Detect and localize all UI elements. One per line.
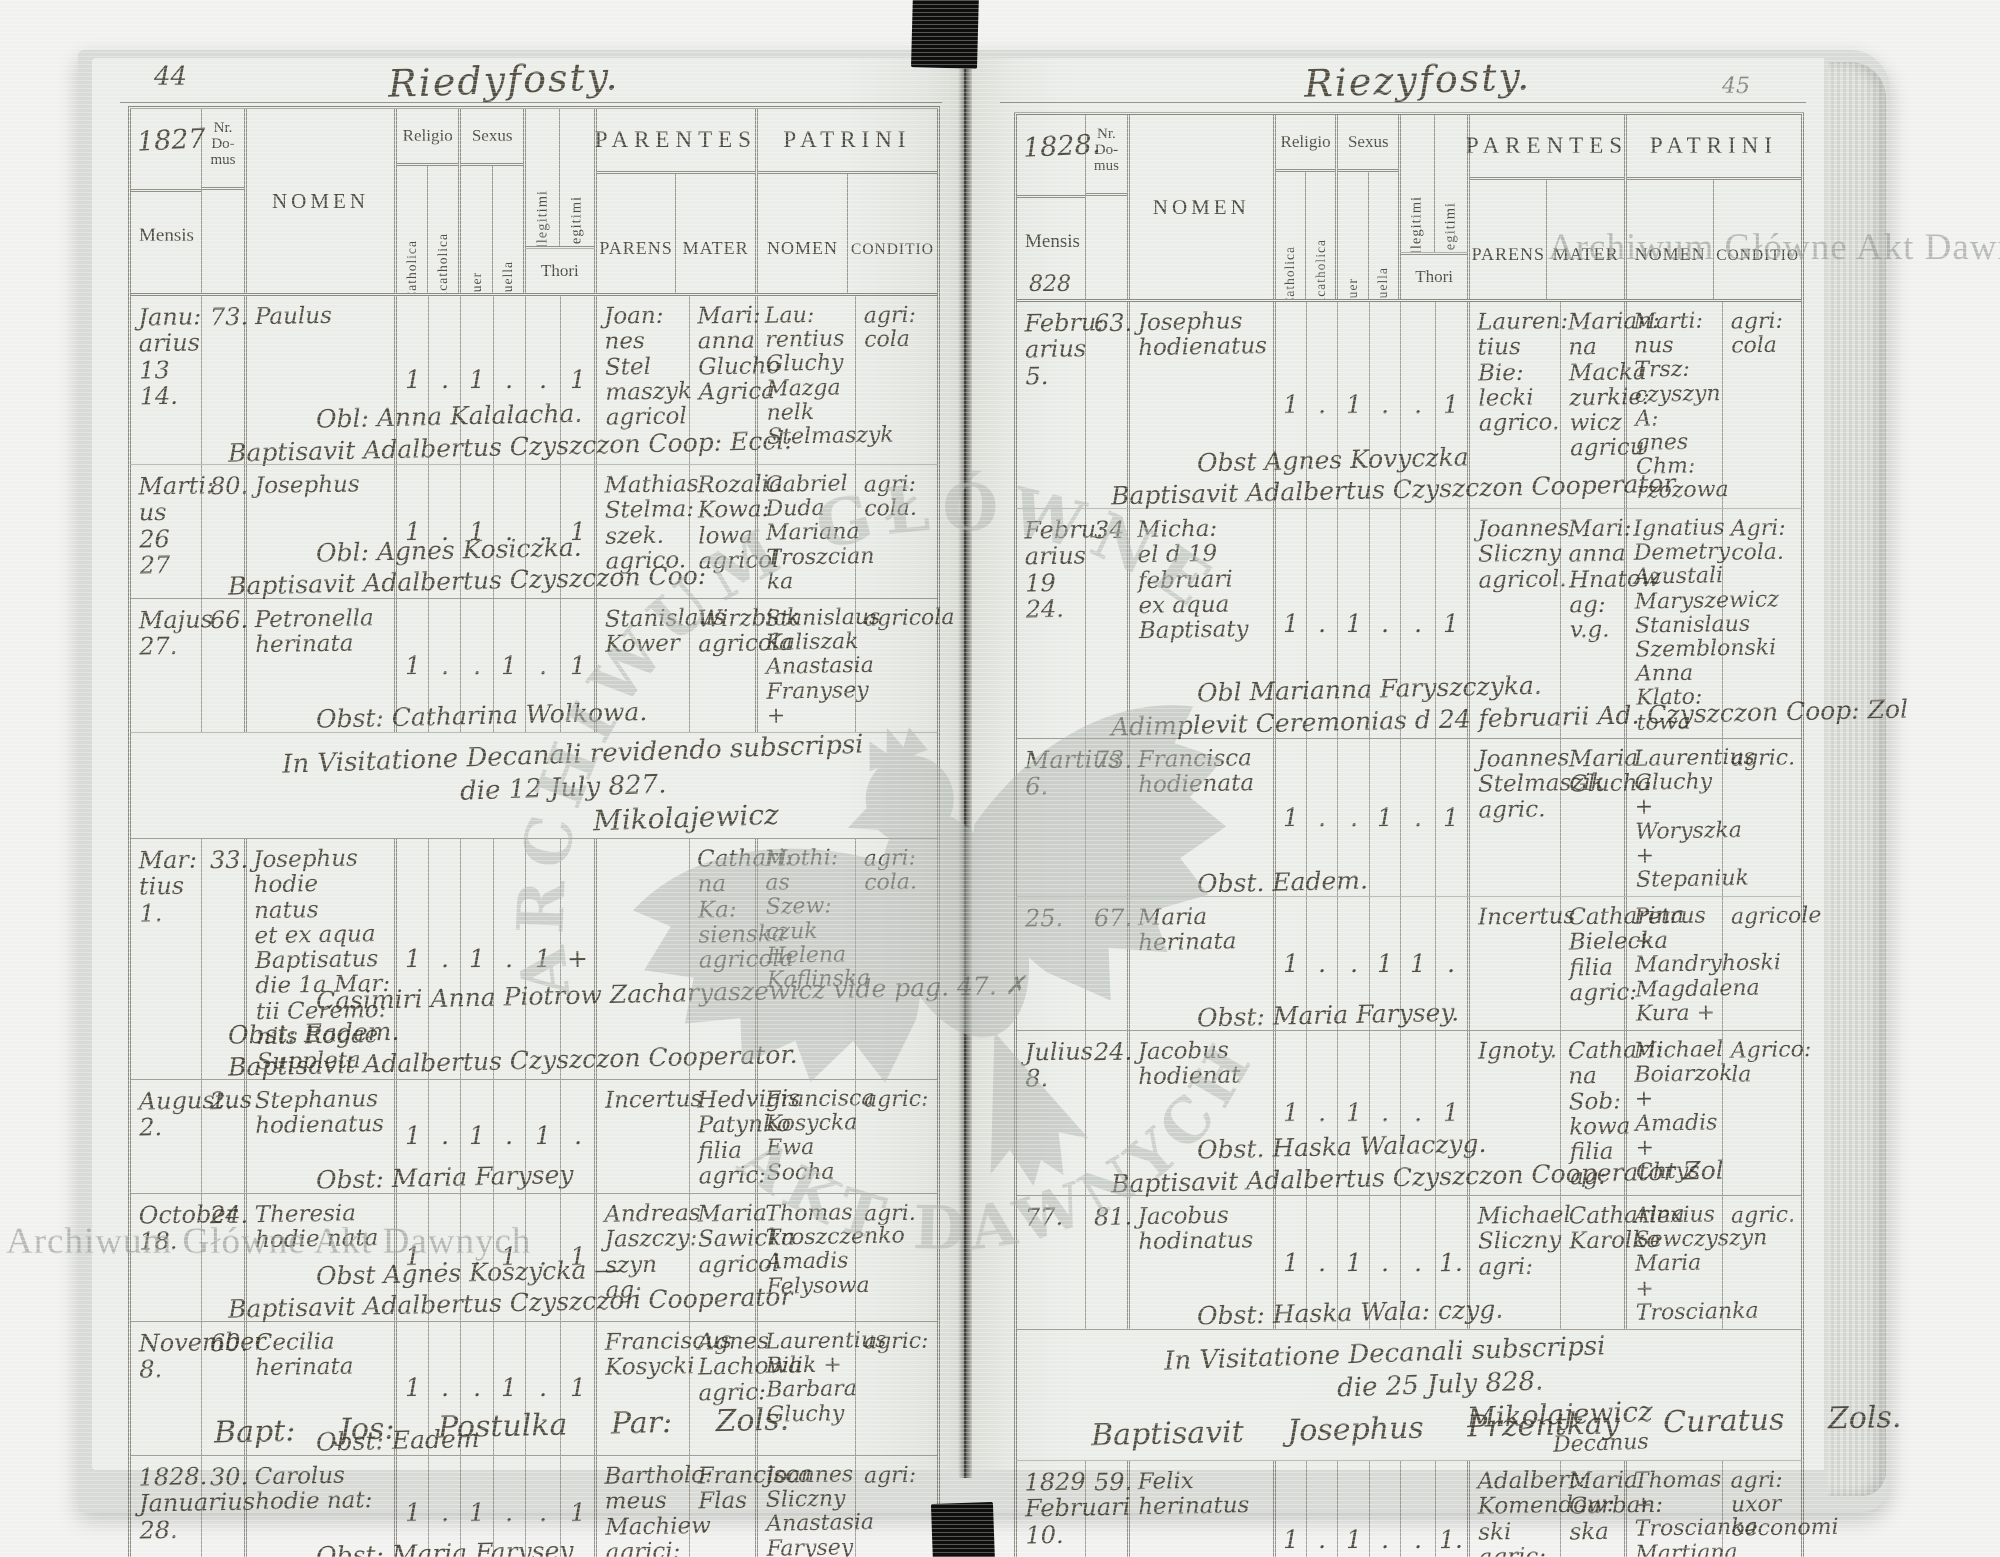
cell-parens-text xyxy=(605,846,685,847)
illegitimi-label: Illegitimi xyxy=(1409,196,1426,252)
cell-mater-text: Marian: na Macka zurkie: wicz agricu xyxy=(1568,310,1621,463)
cell-mark-illegitimi-text: . xyxy=(1414,1526,1422,1554)
cell-mark-catholica: 1 xyxy=(1276,1031,1307,1195)
cell-mark-illegitimi-text: . xyxy=(539,1243,547,1271)
cell-mark-puella-text: 1 xyxy=(1377,804,1393,832)
title-rule xyxy=(120,102,942,103)
cell-mark-acatholica-text: . xyxy=(441,652,449,680)
year-extra-handwritten: 828 xyxy=(1029,272,1071,297)
cell-mark-puer: 1 xyxy=(1338,1031,1369,1195)
page-number: 45 xyxy=(1722,74,1750,99)
cell-nomen: Jacobus hodienat xyxy=(1130,1031,1276,1195)
cell-nomen-text: Jacobus hodienat xyxy=(1137,1038,1269,1091)
cell-mark-puella-text: . xyxy=(1381,1249,1389,1277)
cell-conditio-text: agri: cola xyxy=(864,303,933,353)
cell-mark-catholica: 1 xyxy=(1276,739,1307,896)
register-table: 1827 Mensis Nr. Do- mus NOMEN Religio Ca… xyxy=(128,106,940,1557)
header-parentes-group: PARENTES PARENS MATER xyxy=(1470,115,1627,299)
cell-mark-legitimi-text: 1 xyxy=(569,652,585,680)
cell-mark-catholica-text: 1 xyxy=(404,1498,420,1526)
cell-mark-puella-text: . xyxy=(1381,391,1389,419)
cell-patrini-nomen-text: Joannes Sliczny Anastasia Farysey xyxy=(765,1463,852,1557)
cell-mark-illegitimi: . xyxy=(526,296,561,464)
subcol-mater: MATER xyxy=(676,174,755,293)
cell-mark-legitimi: 1 xyxy=(1436,739,1470,896)
cell-nomen-text: Felix herinatus xyxy=(1137,1468,1269,1521)
cell-nomen-text: Josephus hodienatus xyxy=(1137,309,1269,362)
register-table: 1828. Mensis 828 Nr. Do- mus NOMEN Relig… xyxy=(1014,112,1804,1557)
header-sexus-group: Sexus Puer Puella xyxy=(1338,115,1401,299)
cell-mensis-text: Febru: arius 19 24. xyxy=(1024,516,1082,623)
cell-parens-text: Lauren: tius Bie: lecki agrico. xyxy=(1477,309,1557,437)
register-row: Marti: us 26 2780.Josephus1.1..1Mathias … xyxy=(131,465,937,599)
cell-mark-legitimi: . xyxy=(561,1080,596,1193)
cell-mark-puella: 1 xyxy=(1370,897,1401,1030)
cell-mark-catholica: 1 xyxy=(397,1080,429,1193)
religio-label: Religio xyxy=(1276,115,1336,172)
cell-conditio-text: agric: xyxy=(864,1087,933,1112)
house-number-label: Nr. Do- mus xyxy=(202,109,244,190)
cell-parens: Joannes Sliczny agricol. xyxy=(1470,509,1561,739)
register-row: 25.67.Maria herinata1..11.IncertusCathar… xyxy=(1017,897,1801,1031)
cell-mensis: 1828. Januarius 28. xyxy=(131,1456,202,1557)
cell-mark-illegitimi-text: . xyxy=(1414,1099,1422,1127)
cell-parens-text: Franciscus Kosycki xyxy=(604,1329,685,1381)
thori-label: Thori xyxy=(526,246,594,293)
cell-mark-puer: . xyxy=(461,599,493,732)
cell-mark-legitimi: + xyxy=(561,839,596,1079)
cell-conditio-text: agri. xyxy=(864,1201,933,1226)
cell-mensis-text: Martius 6. xyxy=(1025,747,1082,801)
cell-house-number-text: 34 xyxy=(1094,516,1123,543)
cell-mark-catholica-text: 1 xyxy=(1283,804,1299,832)
cell-nomen-text: Micha: el d 19 februari ex aqua Baptisat… xyxy=(1137,515,1270,644)
cell-patrini-nomen-text: Petrus + Mandryhoski Magdalena Kura + xyxy=(1634,905,1719,1027)
patrini-nomen-label: NOMEN xyxy=(758,238,847,259)
cell-mark-catholica: 1 xyxy=(397,1194,429,1321)
cell-parens-text: Ignoty. xyxy=(1478,1039,1556,1066)
cell-house-number: 81. xyxy=(1086,1196,1130,1329)
header-sexus-group: Sexus Puer Puella xyxy=(461,109,525,293)
cell-nomen-text: Paulus xyxy=(255,303,390,331)
cell-house-number: 73. xyxy=(202,296,247,464)
cell-mark-legitimi-text: 1 xyxy=(569,366,585,394)
cell-nomen: Petronella herinata xyxy=(247,599,397,732)
cell-mark-legitimi: 1 xyxy=(561,296,596,464)
cell-mark-catholica: 1 xyxy=(1276,897,1307,1030)
cell-mater: Rozalia Kowa: lowa agricol xyxy=(690,465,758,598)
cell-parens-text: Adalbert: Komendow: ski agric: xyxy=(1477,1468,1557,1557)
cell-mark-legitimi: 1 xyxy=(561,599,596,732)
cell-conditio-text: agri: cola xyxy=(1730,309,1797,359)
parentes-label: PARENTES xyxy=(597,109,755,174)
cell-mark-acatholica: . xyxy=(429,599,461,732)
sexus-label: Sexus xyxy=(461,109,522,166)
cell-mater-text: Hedvigis Patynko filia agric: xyxy=(697,1087,751,1189)
cell-house-number: 33. xyxy=(202,839,247,1079)
cell-conditio-text: agri: uxor oeconomi xyxy=(1730,1468,1798,1542)
cell-mensis: Mar: tius 1. xyxy=(131,839,202,1079)
cell-mensis-text: 1828. Januarius 28. xyxy=(138,1463,197,1543)
subcol-illegitimi: Illegitimi xyxy=(526,109,560,246)
cell-mark-legitimi: 1 xyxy=(1436,509,1470,739)
cell-nomen-text: Cecilia herinata xyxy=(255,1329,391,1382)
register-row: Janu: arius 13 14.73.Paulus1.1..1Joan: n… xyxy=(131,296,937,465)
cell-mark-acatholica: . xyxy=(429,296,461,464)
register-row: Julius 8.24.Jacobus hodienat1.1..1Ignoty… xyxy=(1017,1031,1801,1196)
cell-parens: Adalbert: Komendow: ski agric: xyxy=(1470,1461,1561,1557)
cell-patrini-nomen: Laurentius Gluchy + Woryszka + Stepaniuk xyxy=(1627,739,1723,896)
parens-label: PARENS xyxy=(597,238,676,259)
cell-mark-acatholica-text: . xyxy=(441,1374,449,1402)
cell-mark-legitimi: 1 xyxy=(1436,1031,1470,1195)
cell-parens: Joan: nes Stel maszyk agricol xyxy=(597,296,690,464)
cell-nomen-text: Francisca hodienata xyxy=(1137,746,1269,799)
cell-mensis-text: Marti: us 26 27 xyxy=(138,473,198,580)
table-body: Febru: arius 5.63.Josephus hodienatus1.1… xyxy=(1017,302,1801,1557)
cell-mensis: 77. xyxy=(1017,1196,1086,1329)
page-number: 44 xyxy=(154,62,187,92)
cell-conditio-text: agricole xyxy=(1730,905,1797,930)
cell-conditio-text: agric. xyxy=(1730,747,1797,772)
cell-conditio: agric: xyxy=(856,1322,937,1455)
cell-mark-legitimi: . xyxy=(1436,897,1470,1030)
cell-nomen: Carolus hodie nat: xyxy=(247,1456,397,1557)
cell-mark-puer-text: 1 xyxy=(1345,1249,1361,1277)
cell-mark-puella-text: . xyxy=(505,518,513,546)
cell-nomen: Felix herinatus xyxy=(1130,1461,1276,1557)
cell-house-number-text: 59. xyxy=(1094,1469,1123,1496)
cell-nomen-text: Petronella herinata xyxy=(255,606,391,659)
cell-mark-puer-text: 1 xyxy=(469,366,485,394)
cell-mark-puella: . xyxy=(494,465,526,598)
cell-mark-puer-text: . xyxy=(1349,804,1357,832)
binding-strap-top xyxy=(911,0,979,69)
cell-mark-illegitimi: . xyxy=(526,465,561,598)
cell-mark-legitimi-text: 1. xyxy=(1439,1526,1463,1554)
cell-nomen-text: Stephanus hodienatus xyxy=(255,1086,391,1139)
cell-mark-puer-text: 1 xyxy=(469,1498,485,1526)
register-row: Mar: tius 1.33.Josephus hodie natus et e… xyxy=(131,839,937,1080)
cell-mater: Mari: anna Glucho Agrica xyxy=(690,296,758,464)
cell-mark-puella: . xyxy=(494,1080,526,1193)
cell-patrini-nomen-text: Michael Boiarzok + Amadis + Chtys xyxy=(1634,1039,1719,1186)
cell-mater-text: Cathari: na Ka: sienska agricola xyxy=(697,846,752,973)
cell-parens-text: Stanislaus Kower xyxy=(604,606,685,658)
cell-mark-legitimi-text: 1 xyxy=(1443,804,1459,832)
cell-mark-legitimi-text: . xyxy=(573,1122,581,1150)
cell-mater-text: Agnes Lachowa agric: xyxy=(698,1329,752,1406)
cell-conditio-text: Agri: cola. xyxy=(1730,516,1797,566)
cell-parens: Stanislaus Kower xyxy=(597,599,690,732)
cell-mark-puella: 1 xyxy=(1370,739,1401,896)
cell-mark-legitimi-text: 1 xyxy=(569,1243,585,1271)
cell-mark-puer-text: 1 xyxy=(1345,609,1361,637)
cell-mark-acatholica-text: . xyxy=(1318,804,1326,832)
cell-nomen: Josephus hodienatus xyxy=(1130,302,1276,508)
sexus-label: Sexus xyxy=(1338,115,1398,172)
header-nomen: NOMEN xyxy=(1130,115,1276,299)
cell-parens-text: Michael Sliczny agri: xyxy=(1477,1203,1556,1280)
acatholica-label: Acatholica xyxy=(435,233,451,293)
subcol-mater: MATER xyxy=(1547,180,1623,299)
cell-mark-puella: . xyxy=(1370,1196,1401,1329)
cell-conditio-text: agri: cola. xyxy=(864,472,933,522)
cell-mark-acatholica-text: . xyxy=(441,1243,449,1271)
cell-mark-legitimi-text: 1 xyxy=(1443,1099,1459,1127)
religio-label: Religio xyxy=(397,109,458,166)
cell-mensis: Julius 8. xyxy=(1017,1031,1086,1195)
parens-label: PARENS xyxy=(1470,244,1546,265)
cell-mark-illegitimi: . xyxy=(1401,1461,1435,1557)
cell-mark-puer-text: 1 xyxy=(469,1122,485,1150)
cell-mark-illegitimi-text: . xyxy=(1414,391,1422,419)
cell-parens: Ignoty. xyxy=(1470,1031,1561,1195)
cell-parens-text: Bartholo: meus Machiew agrici: xyxy=(604,1463,686,1557)
cell-mark-illegitimi-text: . xyxy=(539,518,547,546)
cell-patrini-nomen: Gabriel Duda Mariana Troszcian ka xyxy=(758,465,856,598)
cell-patrini-nomen-text: Stanislaus Kaliszak Anastasia Franysey + xyxy=(765,606,852,728)
page-title-handwritten: Riezyfosty. xyxy=(1303,54,1531,106)
cell-mater-text: Francisca Flas xyxy=(698,1463,752,1515)
cell-mark-acatholica: . xyxy=(429,1456,461,1557)
cell-parens: Incertus xyxy=(597,1080,690,1193)
subcol-conditio: CONDITIO xyxy=(848,174,937,293)
cell-mark-legitimi: 1 xyxy=(561,1456,596,1557)
register-row: 1828. Januarius 28.30.Carolus hodie nat:… xyxy=(131,1456,937,1557)
cell-patrini-nomen: Lau: rentius Gluchy Mazga nelk Stelmaszy… xyxy=(758,296,856,464)
cell-mark-catholica-text: 1 xyxy=(404,366,420,394)
cell-mark-illegitimi-text: . xyxy=(539,652,547,680)
cell-mark-catholica-text: 1 xyxy=(1283,1099,1299,1127)
subcol-conditio: CONDITIO xyxy=(1714,180,1801,299)
thori-label: Thori xyxy=(1401,252,1467,299)
puer-label: Puer xyxy=(469,272,485,293)
cell-mark-legitimi-text: + xyxy=(567,945,588,973)
cell-mark-catholica: 1 xyxy=(1276,1196,1307,1329)
nomen-label: NOMEN xyxy=(272,189,369,214)
cell-mark-catholica: 1 xyxy=(397,1456,429,1557)
cell-mark-illegitimi-text: 1 xyxy=(1410,950,1426,978)
cell-conditio: agri: cola xyxy=(1723,302,1801,508)
cell-nomen: Theresia hodie nata xyxy=(247,1194,397,1321)
cell-mensis: Majus 27. xyxy=(131,599,202,732)
cell-mark-acatholica-text: . xyxy=(441,1499,449,1527)
cell-mark-puer-text: . xyxy=(1349,950,1357,978)
cell-mark-puer-text: . xyxy=(473,1374,481,1402)
subcol-acatholica: Acatholica xyxy=(1306,172,1335,299)
register-book: 44 Riedyfosty. 1827 Mensis Nr. Do- mus N… xyxy=(78,50,1890,1512)
cell-mensis: Marti: us 26 27 xyxy=(131,465,202,598)
page-right: 45 Riezyfosty. 1828. Mensis 828 Nr. Do- … xyxy=(972,58,1824,1470)
book-gutter xyxy=(958,50,972,1478)
cell-conditio-text: agricola xyxy=(864,606,933,631)
cell-parens: Mathias Stelma: szek. agrico. xyxy=(597,465,690,598)
cell-mater: Maria Glucha xyxy=(1561,739,1627,896)
cell-mark-catholica-text: 1 xyxy=(404,1243,420,1271)
cell-mensis: Augustus 2. xyxy=(131,1080,202,1193)
cell-mark-catholica-text: 1 xyxy=(404,1122,420,1150)
cell-mater: Maria Garban: ska xyxy=(1561,1461,1627,1557)
cell-mark-illegitimi: 1 xyxy=(526,839,561,1079)
cell-conditio: agri. xyxy=(856,1194,937,1321)
cell-mater: Hedvigis Patynko filia agric: xyxy=(690,1080,758,1193)
cell-mark-catholica: 1 xyxy=(397,465,429,598)
cell-mark-acatholica-text: . xyxy=(1318,950,1326,978)
catholica-label: Catholica xyxy=(404,240,420,293)
cell-conditio: agri: cola. xyxy=(856,839,937,1079)
cell-mark-puer-text: 1 xyxy=(1345,391,1361,419)
cell-patrini-nomen: Petrus + Mandryhoski Magdalena Kura + xyxy=(1627,897,1723,1030)
cell-mark-acatholica-text: . xyxy=(441,366,449,394)
cell-mark-catholica-text: 1 xyxy=(404,1374,420,1402)
cell-parens-text: Incertus xyxy=(605,1087,686,1114)
cell-mater-text: Mari: anna Hnatow ag: v.g. xyxy=(1568,516,1621,643)
cell-mark-illegitimi-text: . xyxy=(1414,804,1422,832)
subcol-acatholica: Acatholica xyxy=(428,166,458,293)
cell-mark-puella-text: . xyxy=(1381,1526,1389,1554)
cell-mensis-text: 25. xyxy=(1025,905,1081,932)
cell-mater-text: Maria Garban: ska xyxy=(1568,1469,1620,1546)
cell-mark-legitimi: 1 xyxy=(561,465,596,598)
cell-mensis: Febru: arius 5. xyxy=(1017,302,1086,508)
cell-mater: Francisca Flas xyxy=(690,1456,758,1557)
cell-parens xyxy=(597,839,690,1079)
cell-mark-illegitimi-text: . xyxy=(539,366,547,394)
cell-mark-acatholica-text: . xyxy=(441,518,449,546)
conditio-label: CONDITIO xyxy=(848,241,937,259)
cell-mark-puella: . xyxy=(1370,302,1401,508)
cell-mark-puer: . xyxy=(1338,739,1369,896)
cell-mark-acatholica-text: . xyxy=(1318,1249,1326,1277)
register-row: October 18.24.Theresia hodie nata1..1.1A… xyxy=(131,1194,937,1322)
cell-mark-legitimi: 1. xyxy=(1436,1461,1470,1557)
cell-mark-puer: 1 xyxy=(461,1080,493,1193)
cell-mark-puer-text: 1 xyxy=(469,945,485,973)
cell-patrini-nomen: Ignatius Demetry Azustali Maryszewicz St… xyxy=(1627,509,1723,739)
cell-mark-acatholica: . xyxy=(1307,1031,1338,1195)
cell-mensis-text: Julius 8. xyxy=(1025,1039,1082,1093)
cell-mater-text: Catharina Bielecka filia agric: xyxy=(1568,905,1621,1007)
register-row: Augustus 2.2.Stephanus hodienatus1.1.1.I… xyxy=(131,1080,937,1194)
cell-mark-puella: . xyxy=(494,839,526,1079)
cell-house-number-text: 60. xyxy=(210,1329,241,1356)
cell-mark-puella-text: 1 xyxy=(501,652,517,680)
cell-mensis: November 8. xyxy=(131,1322,202,1455)
subcol-patrini-nomen: NOMEN xyxy=(1627,180,1715,299)
cell-house-number-text: 30. xyxy=(210,1463,241,1490)
register-row: 77.81.Jacobus hodinatus1.1..1.Michael Sl… xyxy=(1017,1196,1801,1330)
cell-mensis-text: Majus 27. xyxy=(139,606,198,660)
cell-mark-legitimi-text: 1 xyxy=(1443,609,1459,637)
cell-mark-puer-text: 1 xyxy=(469,518,485,546)
cell-house-number-text: 2. xyxy=(210,1087,241,1114)
cell-house-number-text: 73. xyxy=(1094,747,1123,774)
cell-patrini-nomen: Thomas Troszczenko Amadis Felysowa xyxy=(758,1194,856,1321)
cell-mensis-text: 77. xyxy=(1025,1204,1081,1231)
table-header: 1828. Mensis 828 Nr. Do- mus NOMEN Relig… xyxy=(1017,115,1801,302)
cell-parens: Incertus xyxy=(1470,897,1561,1030)
cell-conditio-text: agri: cola. xyxy=(864,846,933,896)
cell-mark-puella: . xyxy=(494,1456,526,1557)
cell-nomen: Paulus xyxy=(247,296,397,464)
scan-background: 44 Riedyfosty. 1827 Mensis Nr. Do- mus N… xyxy=(0,0,2000,1557)
cell-mark-legitimi: 1 xyxy=(1436,302,1470,508)
cell-mensis-text: Janu: arius 13 14. xyxy=(138,304,198,411)
cell-nomen-text: Josephus xyxy=(255,472,390,500)
cell-mater-text: Wirzbick agricola xyxy=(698,606,752,658)
cell-parens: Lauren: tius Bie: lecki agrico. xyxy=(1470,302,1561,508)
header-religio-group: Religio Catholica Acatholica xyxy=(1276,115,1339,299)
cell-mensis: October 18. xyxy=(131,1194,202,1321)
cell-conditio-text: agric. xyxy=(1730,1203,1797,1228)
mensis-label: Mensis xyxy=(139,225,194,247)
cell-mark-catholica: 1 xyxy=(1276,302,1307,508)
cell-mark-illegitimi: . xyxy=(1401,1031,1435,1195)
patrini-nomen-label: NOMEN xyxy=(1627,244,1714,265)
cell-mark-puella-text: . xyxy=(505,945,513,973)
cell-mark-illegitimi: . xyxy=(1401,1196,1435,1329)
cell-patrini-nomen: Francisca Kosycka Ewa Socha xyxy=(758,1080,856,1193)
patrini-label: PATRINI xyxy=(1627,115,1801,180)
cell-mater-text: Maria Glucha xyxy=(1569,747,1621,798)
cell-mark-illegitimi-text: . xyxy=(1414,610,1422,638)
cell-house-number: 67. xyxy=(1086,897,1130,1030)
cell-parens-text: Andreas Jaszczy: szyn ag: xyxy=(604,1201,686,1304)
subcol-puer: Puer xyxy=(461,166,492,293)
cell-mark-puer: 1 xyxy=(461,839,493,1079)
cell-mark-acatholica: . xyxy=(1307,1196,1338,1329)
register-row: Febru: arius 5.63.Josephus hodienatus1.1… xyxy=(1017,302,1801,509)
cell-mark-puella-text: 1 xyxy=(501,1374,517,1402)
cell-mark-acatholica-text: . xyxy=(1318,1526,1326,1554)
cell-mater: Cathari: na Sob: kowa filia ag: xyxy=(1561,1031,1627,1195)
cell-conditio-text: Agrico: la xyxy=(1730,1039,1797,1089)
cell-mark-legitimi-text: 1 xyxy=(569,1498,585,1526)
header-mensis: 1827 Mensis xyxy=(131,109,202,293)
header-religio-group: Religio Catholica Acatholica xyxy=(397,109,461,293)
cell-mensis-text: November 8. xyxy=(139,1329,198,1383)
catholica-label: Catholica xyxy=(1282,246,1298,299)
subcol-legitimi: Legitimi xyxy=(1435,115,1467,252)
binding-strap-bottom xyxy=(931,1502,995,1557)
header-nomen: NOMEN xyxy=(247,109,397,293)
cell-mark-catholica-text: 1 xyxy=(1283,1249,1299,1277)
cell-patrini-nomen-text: Lau: rentius Gluchy Mazga nelk Stelmaszy… xyxy=(765,303,853,450)
cell-mater: Maria Sawicka agricol xyxy=(690,1194,758,1321)
cell-mark-acatholica-text: . xyxy=(1318,610,1326,638)
cell-mark-illegitimi: . xyxy=(1401,509,1435,739)
cell-mark-puella-text: . xyxy=(505,1122,513,1150)
cell-house-number-text: 80. xyxy=(210,473,241,500)
cell-mater-text: Cathari: na Sob: kowa filia ag: xyxy=(1568,1039,1621,1192)
cell-nomen-text: Carolus hodie nat: xyxy=(255,1463,391,1516)
subcol-patrini-nomen: NOMEN xyxy=(758,174,848,293)
cell-mark-puer-text: 1 xyxy=(1345,1099,1361,1127)
cell-nomen: Josephus xyxy=(247,465,397,598)
cell-conditio: agric: xyxy=(856,1080,937,1193)
cell-patrini-nomen: Marti: nus Trsz: czyszyn A: gnes Chm: rz… xyxy=(1627,302,1723,508)
cell-nomen-text: Josephus hodie natus et ex aqua Baptisat… xyxy=(253,846,392,1076)
cell-nomen: Josephus hodie natus et ex aqua Baptisat… xyxy=(247,839,397,1079)
cell-mark-puer: 1 xyxy=(1338,302,1369,508)
cell-mater: Mari: anna Hnatow ag: v.g. xyxy=(1561,509,1627,739)
cell-mark-puella: . xyxy=(494,296,526,464)
cell-patrini-nomen-text: Francisca Kosycka Ewa Socha xyxy=(765,1087,852,1185)
page-title-handwritten: Riedyfosty. xyxy=(387,54,620,106)
cell-mark-illegitimi-text: . xyxy=(1414,1249,1422,1277)
cell-mark-puer-text: . xyxy=(473,1243,481,1271)
